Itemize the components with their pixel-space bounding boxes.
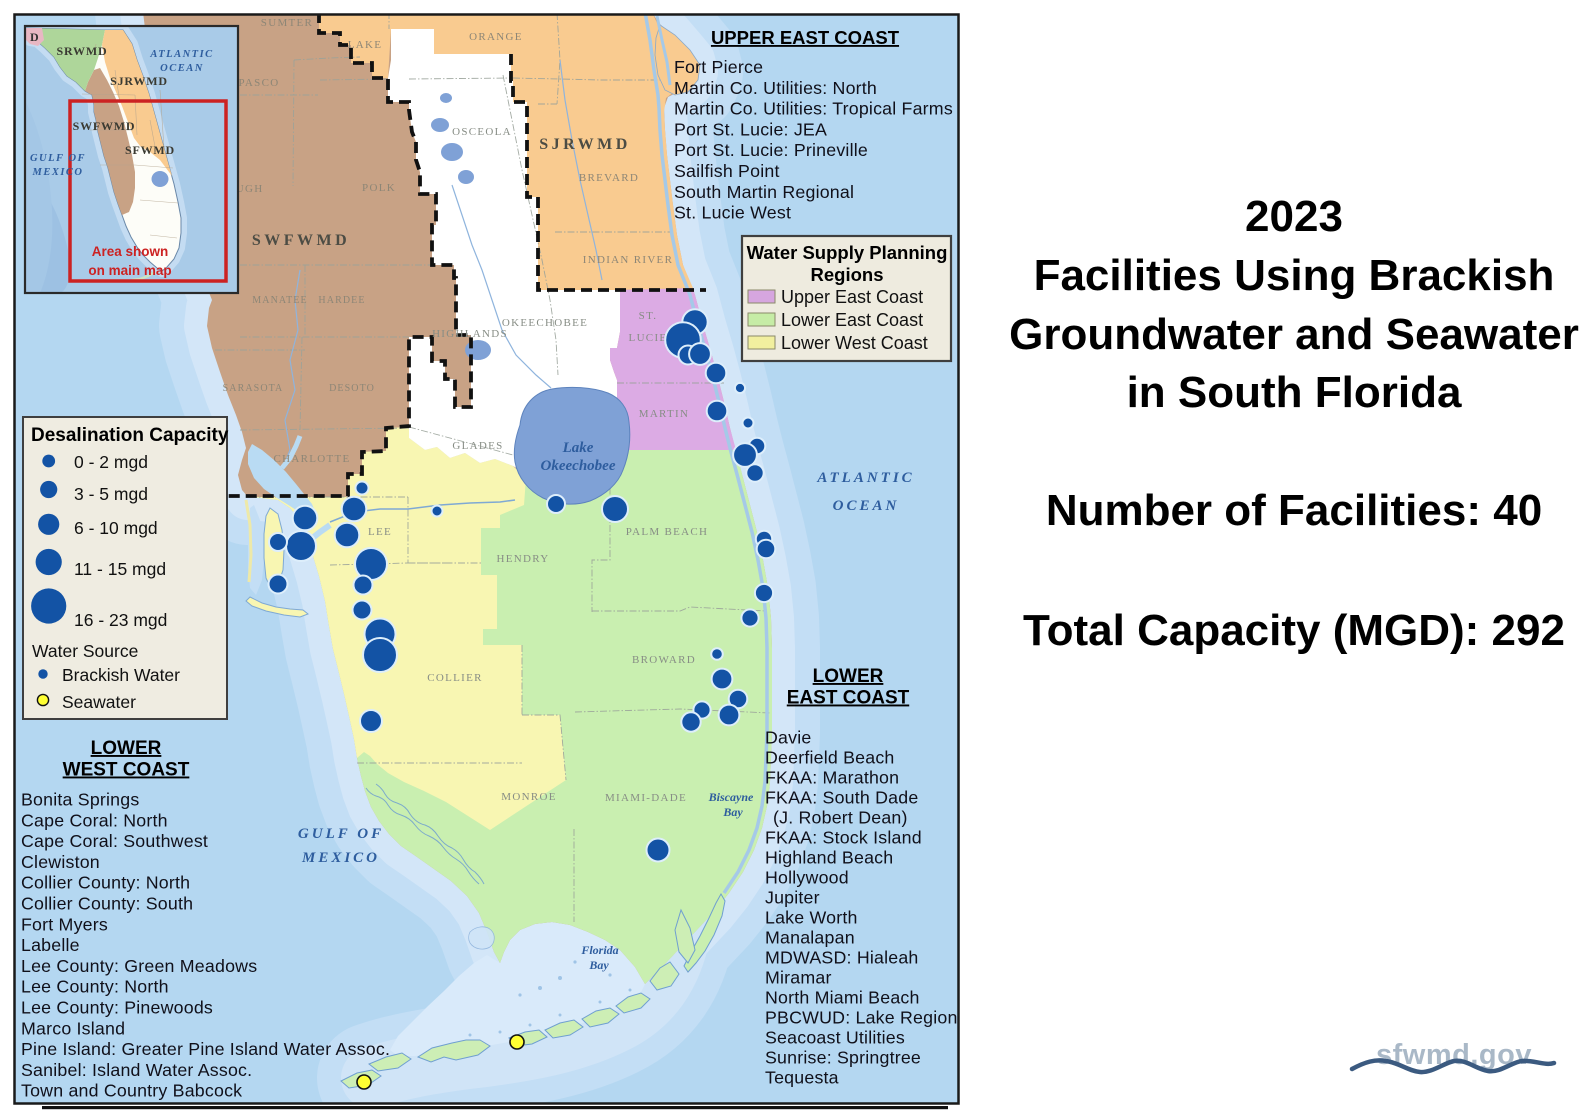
svg-text:INDIAN RIVER: INDIAN RIVER [583,254,673,266]
svg-text:CHARLOTTE: CHARLOTTE [273,453,350,465]
svg-text:Lake: Lake [562,440,594,456]
svg-text:SWFWMD: SWFWMD [252,232,350,249]
svg-text:Bonita Springs: Bonita Springs [21,790,139,810]
svg-text:GULF OF: GULF OF [30,153,86,164]
svg-text:UPPER EAST COAST: UPPER EAST COAST [711,27,900,48]
svg-text:SJRWMD: SJRWMD [539,136,631,153]
svg-text:Water Source: Water Source [32,641,138,661]
svg-text:Lake Worth: Lake Worth [765,908,858,928]
svg-text:Pine Island: Greater Pine Isla: Pine Island: Greater Pine Island Water A… [21,1039,390,1059]
svg-text:Desalination Capacity: Desalination Capacity [31,425,229,446]
svg-text:0 - 2 mgd: 0 - 2 mgd [74,452,148,472]
svg-text:Lower West Coast: Lower West Coast [781,333,928,353]
svg-text:(J. Robert Dean): (J. Robert Dean) [773,808,908,828]
svg-text:Collier County: North: Collier County: North [21,873,190,893]
svg-text:Seacoast Utilities: Seacoast Utilities [765,1028,905,1048]
svg-text:OCEAN: OCEAN [833,498,900,514]
svg-text:Tequesta: Tequesta [765,1068,839,1088]
svg-text:FKAA: Marathon: FKAA: Marathon [765,768,899,788]
svg-text:Miramar: Miramar [765,968,832,988]
svg-text:Deerfield Beach: Deerfield Beach [765,748,895,768]
svg-text:OSCEOLA: OSCEOLA [452,126,512,138]
svg-text:LOWER: LOWER [813,666,884,687]
svg-text:BREVARD: BREVARD [579,172,639,184]
svg-text:Lee County: Green Meadows: Lee County: Green Meadows [21,956,257,976]
svg-text:MONROE: MONROE [501,791,556,803]
svg-text:SUMTER: SUMTER [261,17,313,29]
svg-text:Water Supply Planning: Water Supply Planning [747,242,948,263]
svg-text:Highland Beach: Highland Beach [765,848,893,868]
svg-text:Marco Island: Marco Island [21,1018,125,1038]
svg-text:Seawater: Seawater [62,692,136,712]
svg-text:Sanibel: Island Water Assoc.: Sanibel: Island Water Assoc. [21,1060,252,1080]
svg-text:SRWMD: SRWMD [57,44,108,58]
svg-text:LUCIE: LUCIE [629,332,668,344]
svg-text:6 - 10 mgd: 6 - 10 mgd [74,518,158,538]
svg-text:ATLANTIC: ATLANTIC [149,49,213,60]
svg-text:Sailfish Point: Sailfish Point [674,161,780,181]
svg-text:Florida: Florida [580,943,618,957]
svg-text:Jupiter: Jupiter [765,888,820,908]
svg-text:Labelle: Labelle [21,935,80,955]
svg-text:Lee County: North: Lee County: North [21,977,169,997]
svg-text:Fort Myers: Fort Myers [21,914,108,934]
svg-text:SJRWMD: SJRWMD [110,74,168,88]
svg-text:ORANGE: ORANGE [469,31,523,43]
svg-text:FKAA: South Dade: FKAA: South Dade [765,788,918,808]
svg-text:MEXICO: MEXICO [31,167,83,178]
svg-text:HARDEE: HARDEE [318,295,365,306]
svg-text:D: D [30,30,39,44]
svg-text:LEE: LEE [368,526,392,538]
svg-text:Lower East Coast: Lower East Coast [781,310,923,330]
svg-text:MARTIN: MARTIN [639,408,690,420]
svg-text:Regions: Regions [811,264,884,285]
svg-text:North Miami Beach: North Miami Beach [765,988,920,1008]
svg-text:MEXICO: MEXICO [301,850,380,866]
svg-text:POLK: POLK [362,182,396,194]
svg-text:COLLIER: COLLIER [427,672,483,684]
svg-text:Hollywood: Hollywood [765,868,849,888]
svg-text:SARASOTA: SARASOTA [223,383,284,394]
svg-text:SWFWMD: SWFWMD [73,119,136,133]
svg-text:Clewiston: Clewiston [21,852,100,872]
svg-text:Bay: Bay [588,958,609,972]
svg-text:HENDRY: HENDRY [496,553,549,565]
svg-text:Cape Coral: North: Cape Coral: North [21,810,168,830]
svg-text:PALM BEACH: PALM BEACH [626,526,709,538]
svg-text:South Martin Regional: South Martin Regional [674,182,854,202]
svg-text:Brackish Water: Brackish Water [62,665,180,685]
svg-text:FKAA: Stock Island: FKAA: Stock Island [765,828,922,848]
svg-text:Sunrise: Springtree: Sunrise: Springtree [765,1048,921,1068]
svg-text:Collier County: South: Collier County: South [21,894,193,914]
svg-text:GLADES: GLADES [452,440,503,452]
svg-text:LOWER: LOWER [91,738,162,759]
svg-text:11 - 15 mgd: 11 - 15 mgd [74,559,166,579]
svg-text:DESOTO: DESOTO [329,383,375,394]
svg-text:Biscayne: Biscayne [708,790,754,804]
svg-text:Port St. Lucie: Prineville: Port St. Lucie: Prineville [674,140,868,160]
svg-text:OCEAN: OCEAN [160,63,204,74]
svg-text:MANATEE: MANATEE [252,295,307,306]
svg-text:Cape Coral: Southwest: Cape Coral: Southwest [21,831,208,851]
svg-text:OKEECHOBEE: OKEECHOBEE [502,317,588,329]
svg-text:Bay: Bay [722,805,743,819]
svg-text:LAKE: LAKE [348,39,383,51]
svg-text:ATLANTIC: ATLANTIC [816,470,914,486]
svg-text:MIAMI-DADE: MIAMI-DADE [605,792,687,804]
svg-text:Fort Pierce: Fort Pierce [674,57,763,77]
svg-text:ST.: ST. [639,310,658,322]
svg-text:3 - 5 mgd: 3 - 5 mgd [74,484,148,504]
svg-text:PBCWUD: Lake Region: PBCWUD: Lake Region [765,1008,958,1028]
svg-text:Manalapan: Manalapan [765,928,855,948]
svg-text:on main map: on main map [88,263,171,278]
svg-text:Town and Country Babcock: Town and Country Babcock [21,1081,242,1101]
svg-text:16 - 23 mgd: 16 - 23 mgd [74,610,167,630]
svg-text:Okeechobee: Okeechobee [541,458,616,474]
svg-text:WEST COAST: WEST COAST [63,760,190,781]
svg-text:PASCO: PASCO [239,77,280,89]
svg-text:Upper East Coast: Upper East Coast [781,287,923,307]
svg-text:Port St. Lucie: JEA: Port St. Lucie: JEA [674,119,827,139]
svg-text:GULF OF: GULF OF [298,826,384,842]
svg-text:Area shown: Area shown [92,244,169,259]
svg-text:MDWASD: Hialeah: MDWASD: Hialeah [765,948,919,968]
svg-text:EAST COAST: EAST COAST [787,688,910,709]
svg-text:Davie: Davie [765,728,811,748]
svg-text:Martin Co. Utilities: Tropical: Martin Co. Utilities: Tropical Farms [674,99,953,119]
svg-text:BROWARD: BROWARD [632,654,696,666]
svg-text:Martin Co. Utilities: North: Martin Co. Utilities: North [674,78,877,98]
svg-text:HIGHLANDS: HIGHLANDS [432,328,508,340]
svg-text:Lee County: Pinewoods: Lee County: Pinewoods [21,998,213,1018]
svg-text:St. Lucie West: St. Lucie West [674,203,791,223]
svg-text:SFWMD: SFWMD [125,143,175,157]
